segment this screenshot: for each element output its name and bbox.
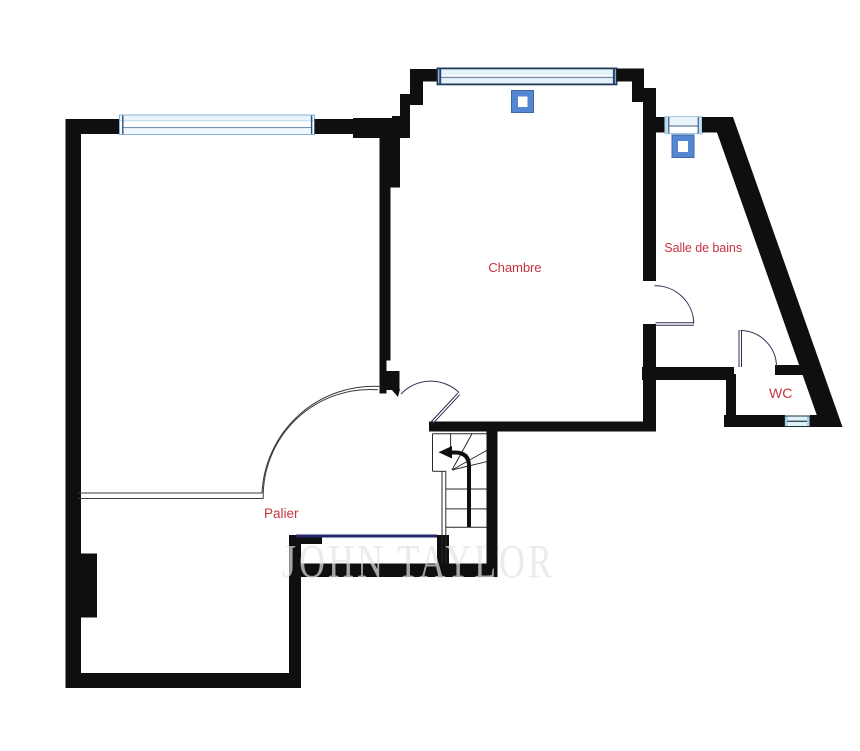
svg-text:Chambre: Chambre [488,260,541,275]
svg-text:Palier: Palier [264,506,299,521]
svg-text:WC: WC [769,385,792,401]
svg-text:JOHN TAYLOR: JOHN TAYLOR [282,536,555,589]
svg-text:Salle de bains: Salle de bains [664,241,742,255]
